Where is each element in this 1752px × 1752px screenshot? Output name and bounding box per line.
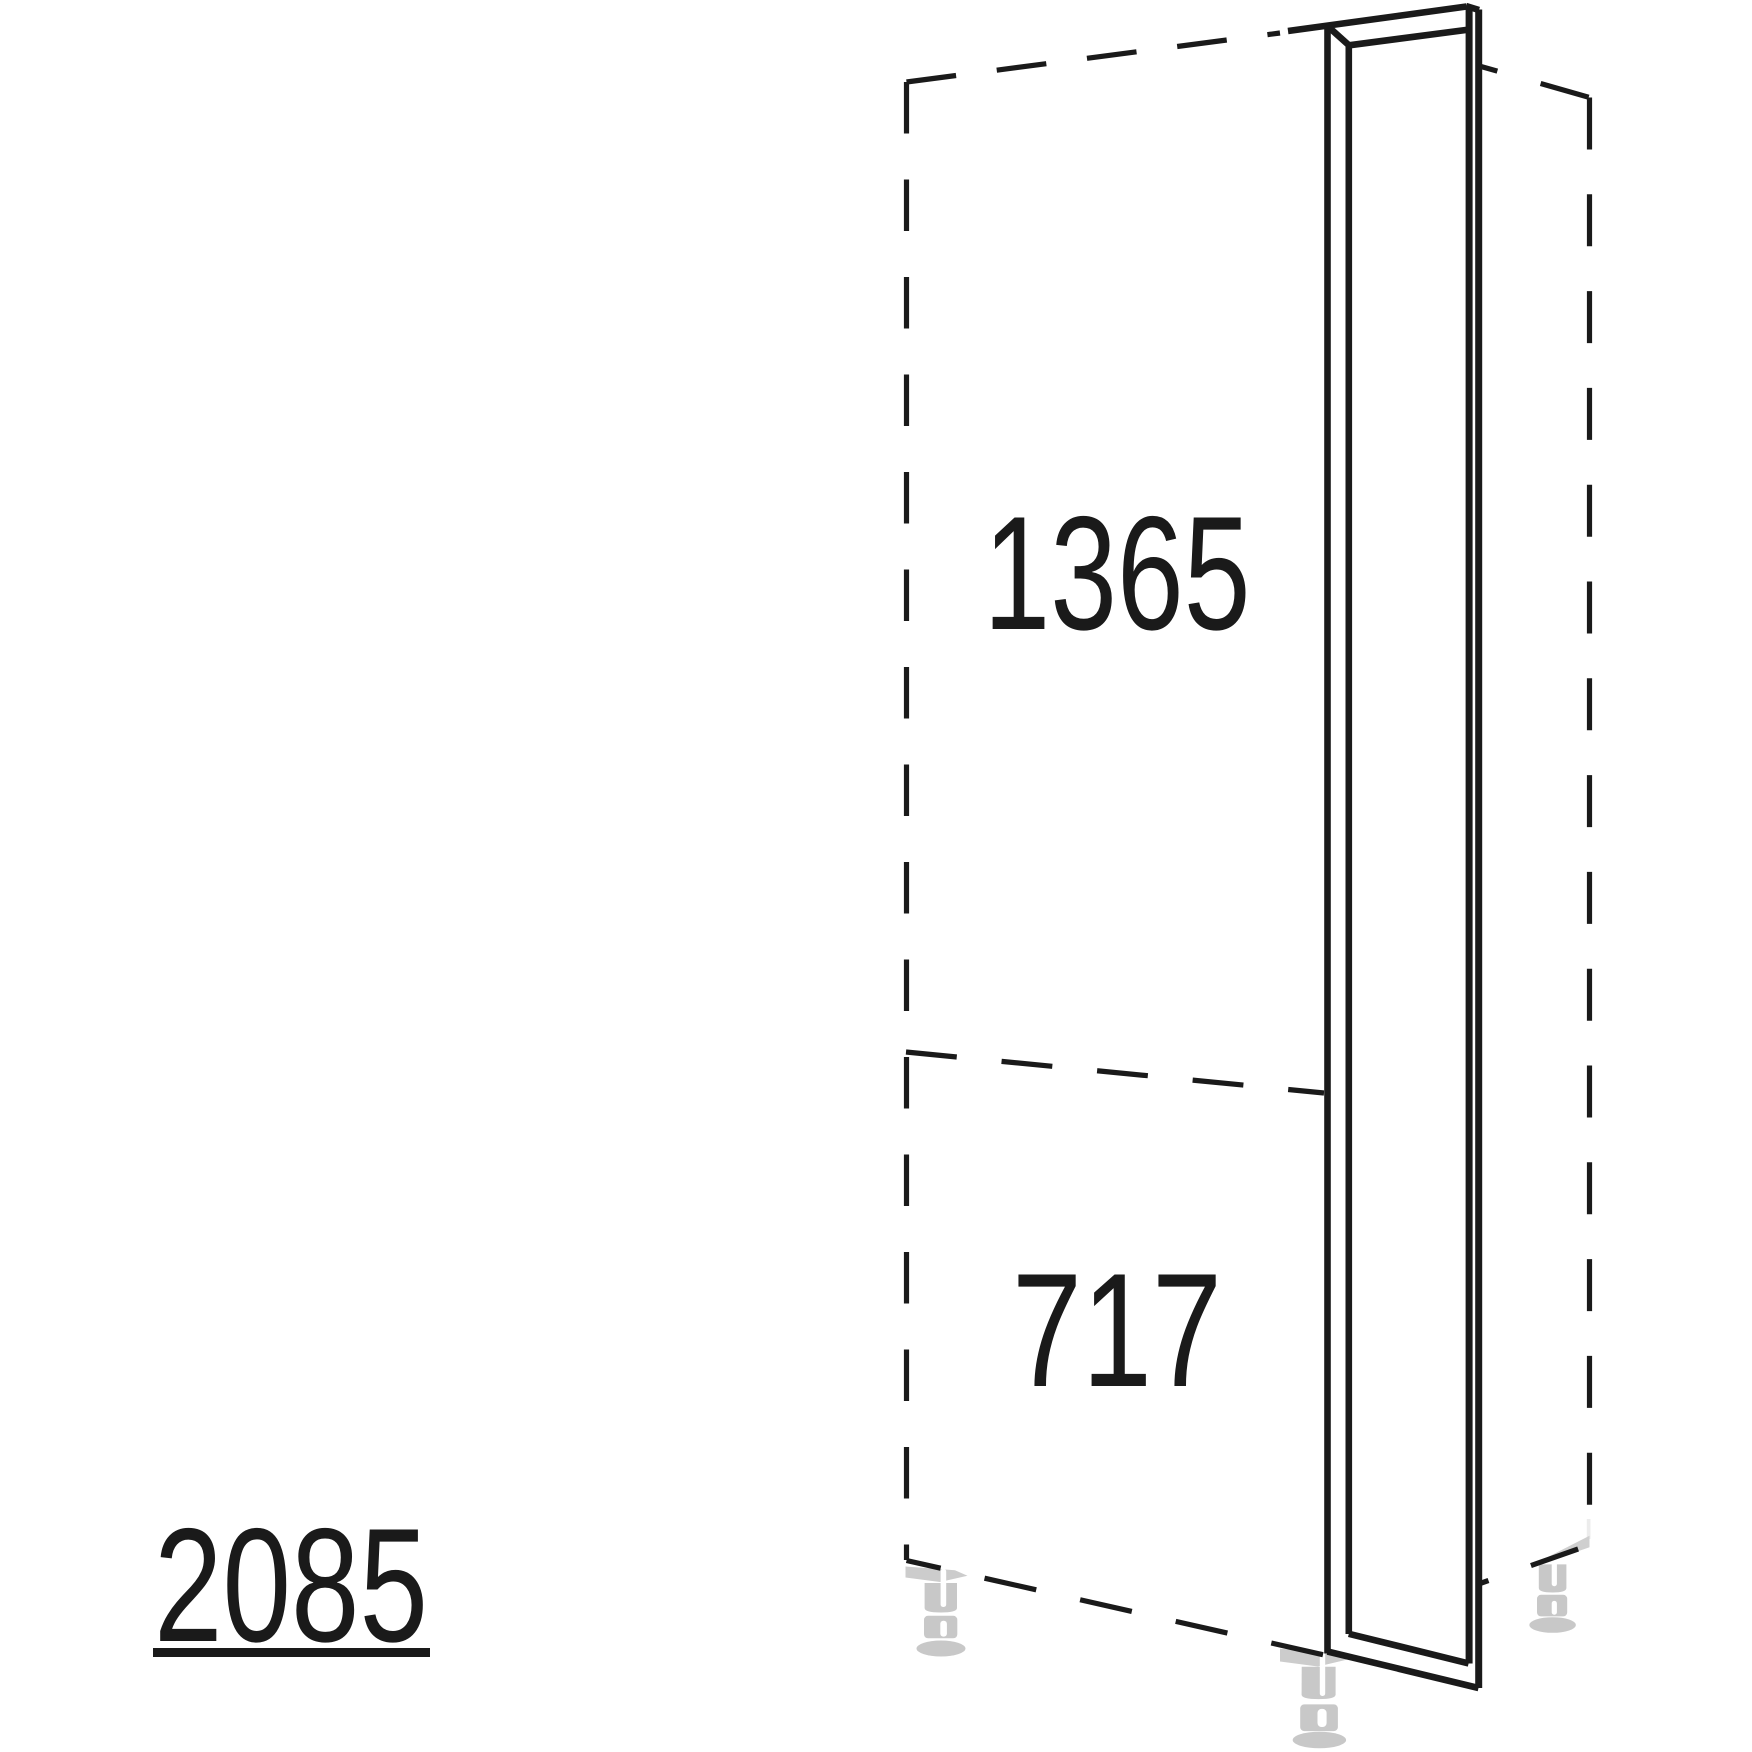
svg-text:717: 717 (1012, 1240, 1222, 1421)
svg-text:1365: 1365 (984, 483, 1251, 664)
